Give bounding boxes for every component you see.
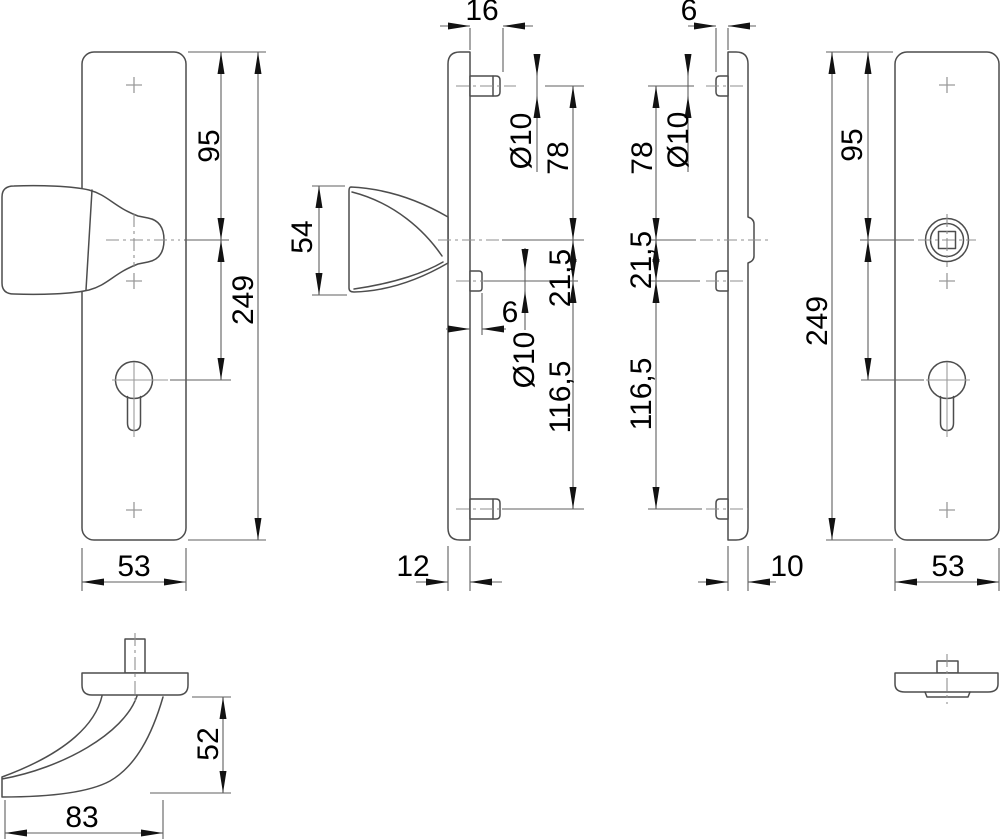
dimension-arrows [316, 23, 577, 586]
dim-label-16: 16 [465, 0, 498, 27]
outer-plate-profile [448, 52, 470, 540]
dim-label-95-outer: 95 [193, 129, 226, 162]
dim-label-54: 54 [286, 220, 319, 253]
outer-plate-outline [82, 52, 186, 540]
dim-label-dia10-mid-outer: Ø10 [508, 332, 541, 389]
front-view-outer-knob-plate [2, 52, 186, 540]
dim-label-83: 83 [65, 801, 98, 834]
technical-drawing-page: 95 249 53 [0, 0, 1000, 839]
inner-plate-profile [728, 52, 754, 540]
dimension-arrows [653, 23, 771, 586]
top-view-knob-plate [2, 633, 188, 797]
dim-label-6-middle: 6 [502, 296, 519, 329]
dim-label-12: 12 [396, 550, 429, 583]
dim-label-52: 52 [192, 727, 225, 760]
dim-label-116-5-outer: 116,5 [544, 361, 577, 434]
dim-label-21-5-inner: 21,5 [625, 231, 658, 289]
dim-label-116-5-inner: 116,5 [625, 358, 658, 431]
dim-label-dia10-top-outer: Ø10 [505, 113, 538, 170]
dim-label-249-inner: 249 [801, 296, 834, 346]
dimension-lines [656, 26, 776, 582]
dimension-arrows [5, 697, 227, 837]
drawing-canvas: 95 249 53 [0, 0, 1000, 839]
side-view-outer-plate [349, 52, 516, 540]
inner-plate-outline [895, 52, 999, 540]
dimension-lines [5, 697, 223, 833]
top-view-inner-plate [895, 654, 998, 704]
extension-lines [5, 697, 231, 839]
knob-top-view-curves [2, 696, 163, 797]
side-view-inner-plate [700, 52, 770, 540]
dim-label-6-inner: 6 [681, 0, 698, 27]
dimensions-side-inner: 6 Ø10 78 21,5 116,5 10 [625, 0, 804, 591]
dimensions-side-outer: 16 54 Ø10 78 21,5 6 Ø10 116,5 12 [286, 0, 584, 591]
dim-label-dia10-inner: Ø10 [662, 112, 695, 169]
dim-label-53-inner: 53 [931, 550, 964, 583]
front-view-inner-plate [895, 52, 999, 540]
knob-side-profile [349, 187, 448, 292]
dim-label-78-inner: 78 [626, 141, 659, 174]
dim-label-21-5-outer: 21,5 [544, 249, 577, 307]
dim-label-78-outer: 78 [542, 141, 575, 174]
dim-label-95-inner: 95 [836, 128, 869, 161]
dim-label-249-outer: 249 [227, 275, 260, 325]
dim-label-53-outer: 53 [117, 550, 150, 583]
dimensions-top-knob: 52 83 [5, 697, 231, 839]
dim-label-10: 10 [770, 550, 803, 583]
